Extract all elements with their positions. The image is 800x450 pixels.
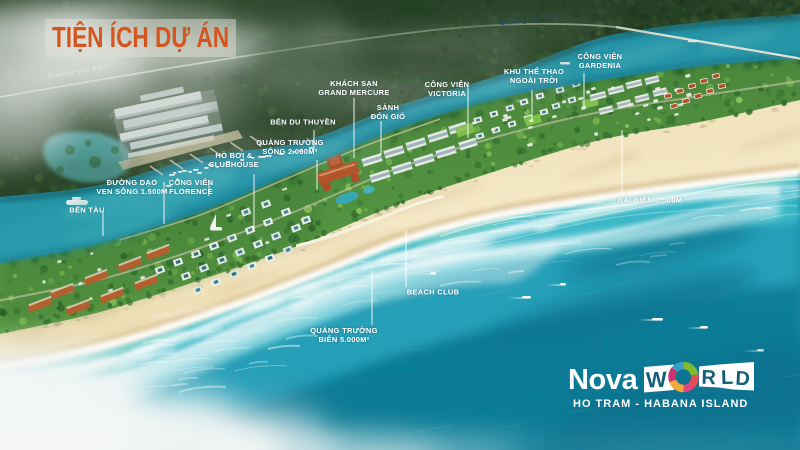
svg-text:W: W — [646, 367, 668, 393]
svg-text:L: L — [721, 367, 734, 389]
svg-text:R: R — [701, 367, 717, 390]
svg-text:HO TRAM - HABANA ISLAND: HO TRAM - HABANA ISLAND — [573, 398, 748, 410]
svg-text:Nova: Nova — [568, 364, 639, 396]
svg-text:D: D — [735, 368, 751, 391]
